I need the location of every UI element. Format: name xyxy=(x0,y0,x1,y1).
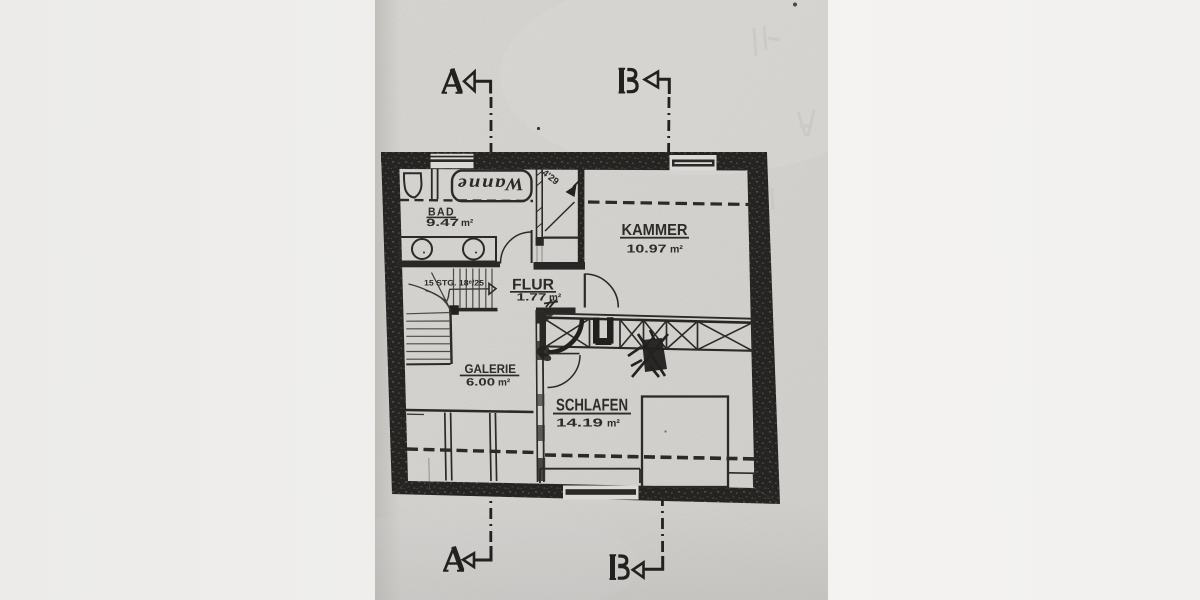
svg-text:9.47: 9.47 xyxy=(426,217,459,229)
svg-text:Wanne: Wanne xyxy=(456,175,524,195)
svg-text:14.19: 14.19 xyxy=(556,418,603,430)
svg-text:1.77: 1.77 xyxy=(517,292,547,304)
svg-text:SCHLAFEN: SCHLAFEN xyxy=(556,396,628,415)
svg-text:10.97: 10.97 xyxy=(627,244,667,256)
svg-text:GALERIE: GALERIE xyxy=(465,362,517,376)
svg-text:m²: m² xyxy=(461,218,474,229)
svg-text:m²: m² xyxy=(670,244,683,256)
svg-text:m²: m² xyxy=(607,418,620,430)
svg-text:m²: m² xyxy=(498,378,511,389)
svg-text:KAMMER: KAMMER xyxy=(622,222,688,239)
svg-text:15 STG. 18ᵉ/25: 15 STG. 18ᵉ/25 xyxy=(424,279,485,288)
svg-text:6.00: 6.00 xyxy=(466,377,495,389)
